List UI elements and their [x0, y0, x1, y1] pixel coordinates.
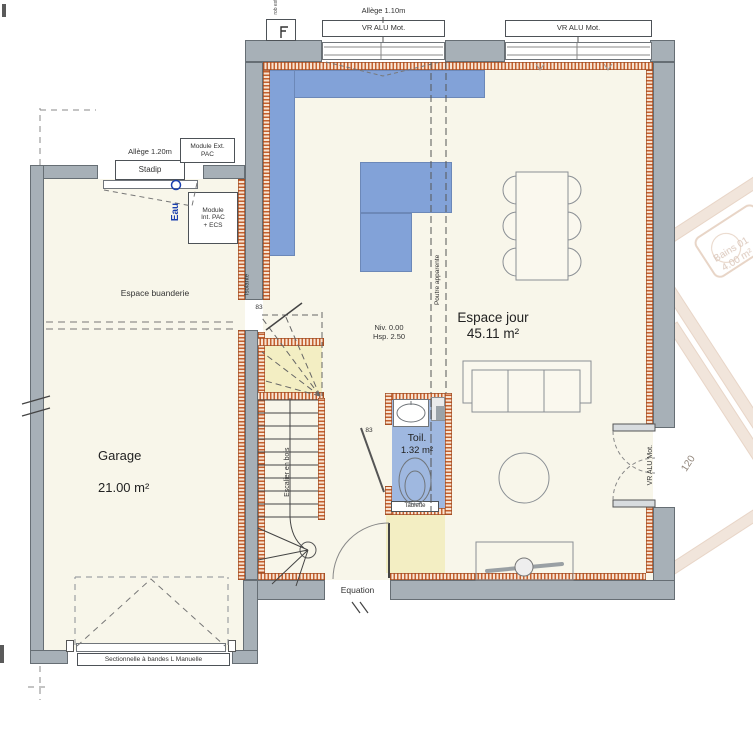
kitchen-island-lower	[360, 213, 412, 272]
wall-bottom-right	[390, 580, 675, 600]
floor-plan-page: { "labels": { "allege_top": "Allège 1.10…	[0, 0, 753, 742]
garage-wall-left	[30, 165, 44, 664]
door83-toilet-label: 83	[362, 427, 376, 435]
espace-jour-name: Espace jour	[445, 310, 541, 326]
garage-wall-top-b	[203, 165, 245, 179]
vestibule	[386, 515, 445, 573]
stair-strip-upper	[256, 338, 324, 346]
garage-door-jamb-left	[66, 640, 74, 652]
espace-jour-area: 45.11 m²	[445, 326, 541, 342]
garage-wall-bottom-a	[30, 650, 68, 664]
wall-top-b	[445, 40, 505, 62]
window2-frame	[505, 42, 652, 60]
garage-label: Garage	[98, 448, 188, 464]
wall-right-upper	[653, 62, 675, 428]
toilet-wall-left-upper	[385, 393, 392, 425]
insulation-bottom-right	[390, 573, 646, 580]
insulation-left-upper	[263, 70, 270, 300]
module-int-line3: + ECS	[204, 222, 223, 229]
espace-jour-label: Espace jour 45.11 m²	[445, 310, 541, 342]
stair-wall-right	[318, 398, 325, 520]
toilet-duct	[431, 397, 445, 421]
window1-frame	[322, 42, 445, 60]
toilettes-area: 1.32 m²	[392, 445, 442, 456]
module-int-line1: Module	[202, 207, 223, 214]
toilet-wall-right	[445, 393, 452, 515]
toilettes-name: Toil.	[392, 432, 442, 445]
allege-left-label: Allège 1.20m	[95, 147, 205, 156]
stadip-sill	[103, 180, 198, 189]
window1-shutter-label: VR ALU Mot.	[362, 24, 405, 32]
garage-door-label: Sectionnelle à bandes L Manuelle	[105, 656, 202, 663]
stair-strip-lower	[256, 392, 324, 400]
wall-top-c	[650, 40, 675, 62]
niveau-label: Niv. 0.00 Hsp. 2.50	[363, 323, 415, 341]
hauteur-line: Hsp. 2.50	[363, 332, 415, 341]
toilet-duct-inner	[436, 406, 445, 420]
insulation-garage-side-lower	[238, 330, 245, 580]
stadip-label: Stadip	[139, 166, 162, 175]
equation-label: Equation	[325, 585, 390, 595]
door83-stair-label: 83	[252, 304, 266, 312]
insulation-bottom-left	[250, 573, 325, 580]
stair-landing	[258, 346, 322, 392]
isolante-label: Isolante	[244, 264, 251, 306]
garage-interior	[44, 179, 245, 651]
ghost-dimension-120: 120	[675, 446, 704, 481]
wall-left-lower	[245, 330, 258, 580]
garage-door-sill	[76, 643, 226, 652]
window1-shutter-box: VR ALU Mot.	[322, 20, 445, 37]
module-int-line2: Int. PAC	[201, 214, 225, 221]
garage-wall-bottom-b	[232, 650, 258, 664]
insulation-right-lower	[646, 507, 653, 573]
insulation-top	[263, 62, 653, 70]
insulation-left-lower	[258, 332, 265, 573]
garage-door-jamb-right	[228, 640, 236, 652]
window2-shutter-label: VR ALU Mot.	[557, 24, 600, 32]
insulation-right-upper	[646, 70, 653, 428]
kitchen-counter-top	[263, 70, 485, 98]
french-door-opening	[653, 428, 675, 507]
garage-area-label: 21.00 m²	[98, 480, 193, 496]
ghost-wall-bottom	[668, 434, 753, 575]
toilettes-label: Toil. 1.32 m²	[392, 432, 442, 456]
poutre-label: Poutre apparente	[434, 249, 442, 311]
allege-top-label: Allège 1.10m	[322, 6, 445, 15]
espace-buanderie-label: Espace buanderie	[95, 288, 215, 298]
escalier-label: Escalier en bois	[284, 427, 292, 517]
wall-top-a	[245, 40, 322, 62]
tablette-box: Tablette	[391, 501, 439, 512]
module-int-pac-box: Module Int. PAC + ECS	[188, 192, 238, 244]
stadip-window-box: Stadip	[115, 160, 185, 180]
rob-ext-label: rob ext	[273, 0, 279, 21]
window2-shutter-box: VR ALU Mot.	[505, 20, 652, 37]
exterior-tap-box	[266, 19, 296, 41]
vr-alu-right-label: VR ALU Mot.	[647, 430, 655, 500]
toilet-sink-counter	[393, 399, 429, 427]
garage-door-label-box: Sectionnelle à bandes L Manuelle	[77, 653, 230, 666]
kitchen-island-upper	[360, 162, 452, 213]
tablette-label: Tablette	[404, 503, 425, 510]
eau-label: Eau	[170, 185, 182, 239]
scan-artifacts	[2, 4, 4, 663]
niveau-line: Niv. 0.00	[363, 323, 415, 332]
